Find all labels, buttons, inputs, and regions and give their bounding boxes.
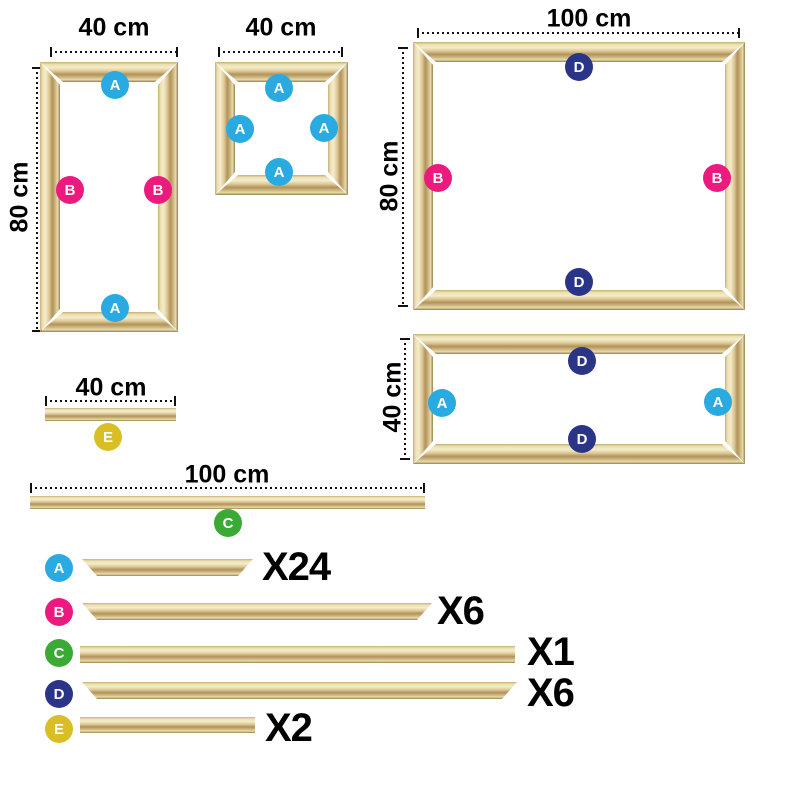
frame-40x40: A A A A — [215, 62, 348, 195]
frame-100x80: D B B D — [413, 42, 745, 310]
frame-40x80: A B B A — [40, 62, 178, 332]
frame-large-height-label: 80 cm — [376, 141, 405, 212]
loose-bar-long-dimension-line — [30, 487, 425, 489]
badge-b: B — [424, 164, 452, 192]
legend-badge-d: D — [45, 680, 73, 708]
frame-square-width-label: 40 cm — [246, 14, 317, 43]
badge-a: A — [265, 74, 293, 102]
legend-count-a: X24 — [262, 547, 330, 587]
legend-badge-c: C — [45, 639, 73, 667]
badge-b: B — [56, 176, 84, 204]
badge-a: A — [428, 389, 456, 417]
legend-count-c: X1 — [527, 632, 574, 672]
loose-bar-short — [45, 408, 176, 421]
frame-tall-height-label: 80 cm — [6, 162, 35, 233]
badge-d: D — [568, 425, 596, 453]
badge-d: D — [568, 347, 596, 375]
frame-tall-width-dimension-line — [50, 51, 178, 53]
loose-bar-long — [30, 496, 425, 509]
stretcher-bar-kit-diagram: 40 cm 80 cm A B B A 40 cm A A A A 100 cm… — [0, 0, 800, 800]
frame-tall-height-dimension-line — [36, 67, 38, 332]
badge-a: A — [310, 114, 338, 142]
badge-c: C — [214, 509, 242, 537]
legend-bar-a — [82, 559, 253, 576]
badge-a: A — [101, 71, 129, 99]
legend-badge-b: B — [45, 598, 73, 626]
legend-bar-d — [82, 682, 517, 699]
badge-d: D — [565, 53, 593, 81]
frame-tall-width-label: 40 cm — [79, 14, 150, 43]
legend-bar-b — [82, 603, 432, 620]
frame-100x40: D A A D — [413, 334, 745, 464]
badge-a: A — [704, 388, 732, 416]
badge-d: D — [565, 268, 593, 296]
loose-bar-long-length-label: 100 cm — [185, 461, 270, 490]
badge-a: A — [226, 115, 254, 143]
legend-badge-e: E — [45, 715, 73, 743]
legend-bar-e — [80, 717, 255, 733]
frame-large-height-dimension-line — [402, 47, 404, 307]
loose-bar-short-length-label: 40 cm — [76, 374, 147, 403]
legend-count-d: X6 — [527, 673, 574, 713]
frame-wide-height-dimension-line — [404, 338, 406, 460]
badge-a: A — [101, 294, 129, 322]
badge-b: B — [144, 176, 172, 204]
legend-count-e: X2 — [265, 708, 312, 748]
badge-a: A — [265, 158, 293, 186]
legend-badge-a: A — [45, 554, 73, 582]
loose-bar-short-dimension-line — [45, 400, 176, 402]
badge-b: B — [703, 164, 731, 192]
frame-square-width-dimension-line — [218, 51, 343, 53]
legend-count-b: X6 — [437, 591, 484, 631]
badge-e: E — [94, 423, 122, 451]
frame-large-width-dimension-line — [417, 32, 740, 34]
legend-bar-c — [80, 646, 515, 663]
frame-large-width-label: 100 cm — [547, 5, 632, 34]
